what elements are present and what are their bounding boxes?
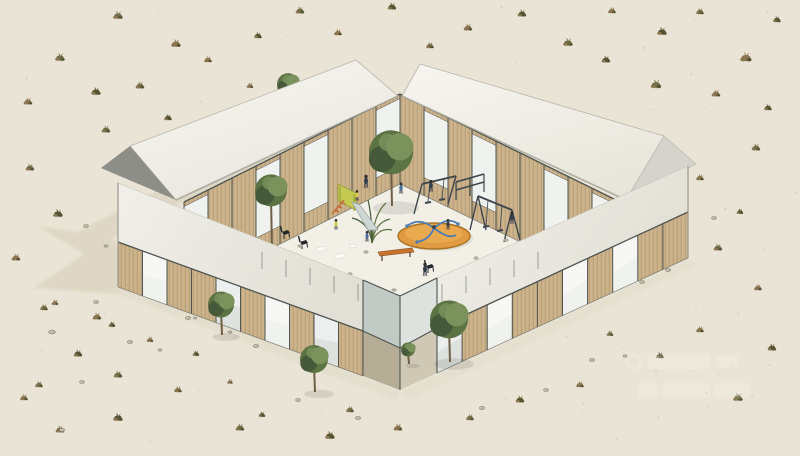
rendering-stage (0, 0, 800, 456)
rock (355, 416, 360, 419)
rock (296, 399, 301, 402)
rock (544, 389, 549, 392)
rock (104, 245, 108, 247)
rock (193, 317, 196, 319)
scene-svg (0, 0, 800, 456)
rock (49, 330, 56, 334)
rock (228, 331, 232, 333)
rock (589, 358, 594, 361)
rock (665, 268, 670, 271)
rock (158, 349, 162, 351)
rock (640, 281, 645, 284)
rock (479, 406, 484, 409)
rock (127, 340, 132, 343)
rock (185, 316, 190, 319)
rock (94, 301, 99, 304)
rock (712, 217, 717, 220)
rock (253, 344, 258, 347)
rock (80, 381, 85, 384)
rock (84, 225, 89, 228)
rock (623, 355, 627, 357)
rock (59, 428, 64, 431)
